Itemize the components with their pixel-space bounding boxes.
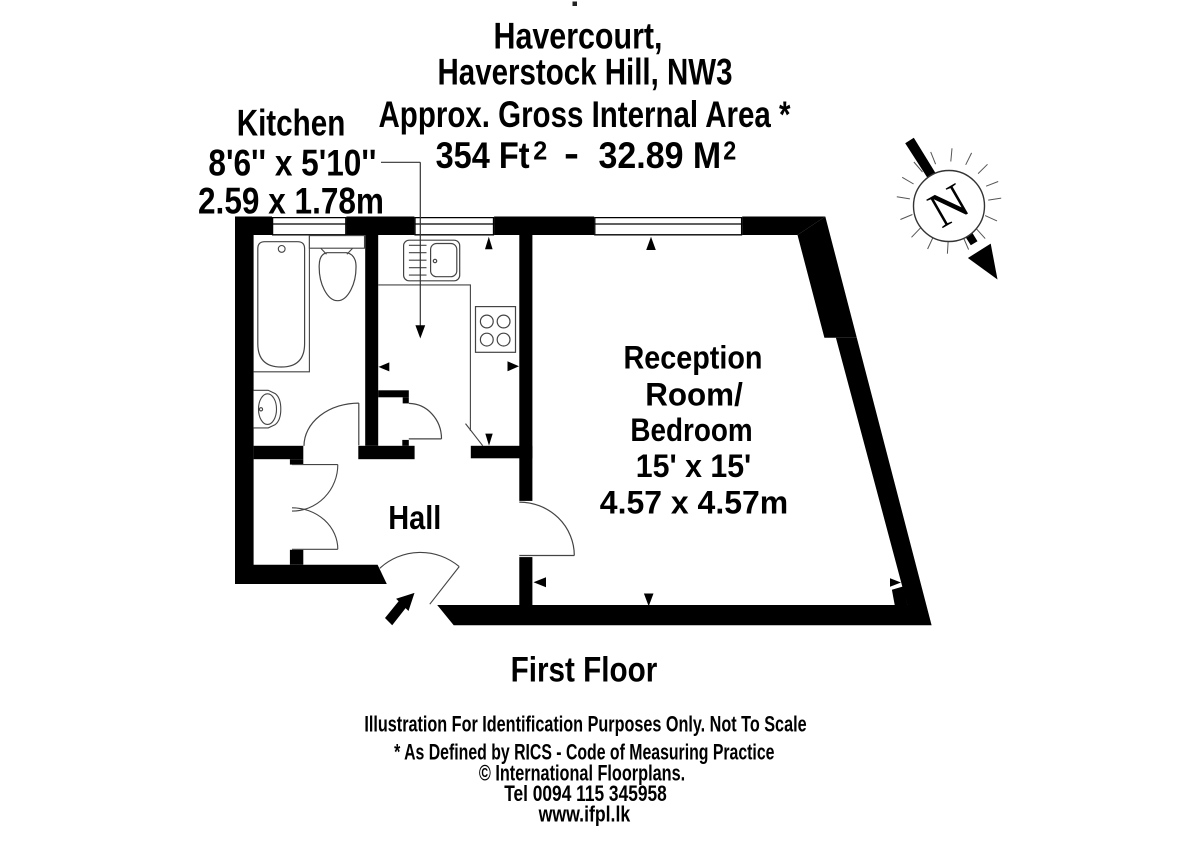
svg-text:2: 2 [533, 136, 547, 166]
svg-text:Kitchen: Kitchen [237, 102, 346, 143]
svg-text:Hall: Hall [388, 499, 441, 536]
svg-text:8'6'' x 5'10'': 8'6'' x 5'10'' [208, 143, 376, 184]
svg-text:4.57 x 4.57m: 4.57 x 4.57m [600, 485, 788, 521]
svg-text:15' x 15': 15' x 15' [636, 448, 752, 484]
svg-text:Room/: Room/ [645, 376, 743, 412]
svg-text:-: - [564, 133, 579, 174]
svg-text:Haverstock Hill, NW3: Haverstock Hill, NW3 [438, 52, 733, 93]
svg-text:Illustration For Identificatio: Illustration For Identification Purposes… [364, 712, 806, 737]
svg-text:2: 2 [723, 136, 736, 166]
svg-text:32.89 M: 32.89 M [599, 135, 722, 176]
svg-text:Bedroom: Bedroom [630, 412, 752, 448]
svg-text:First Floor: First Floor [511, 650, 658, 689]
svg-text:Reception: Reception [624, 340, 763, 376]
svg-text:Havercourt,: Havercourt, [494, 16, 663, 57]
svg-text:Approx. Gross Internal Area *: Approx. Gross Internal Area * [379, 94, 791, 135]
svg-text:2.59 x 1.78m: 2.59 x 1.78m [198, 181, 384, 222]
svg-text:www.ifpl.lk: www.ifpl.lk [538, 802, 631, 827]
svg-text:354 Ft: 354 Ft [436, 135, 530, 176]
